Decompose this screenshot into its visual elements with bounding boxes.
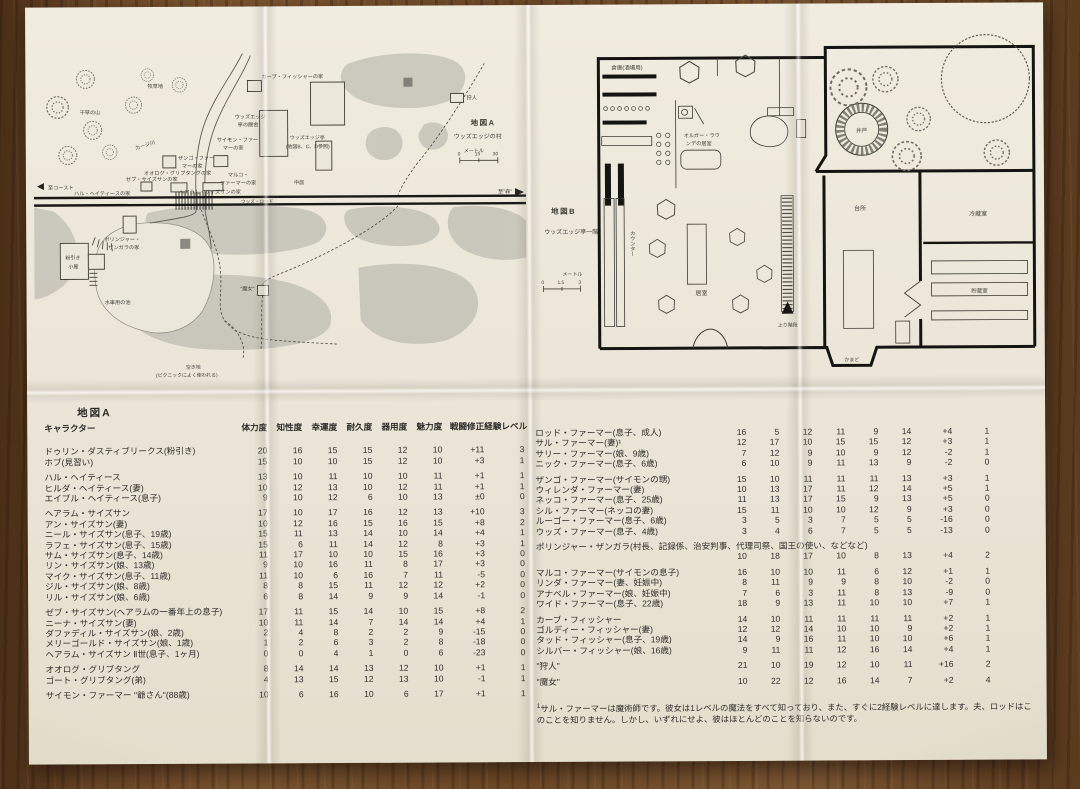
stat-value: 18 [747,551,780,562]
stat-value: 11 [813,634,846,645]
stat-value: 10 [268,570,303,581]
map-a-label-mill-2: 小屋 [68,263,78,270]
stat-value: 8 [408,538,443,549]
stat-value: 15 [304,674,339,685]
stat-value: 11 [268,617,303,628]
stat-value: 14 [780,623,813,634]
map-b-subtitle: ウッズエッジ亭一階 [544,228,598,236]
stat-value: 1 [952,446,989,457]
stat-value: +3 [911,436,952,447]
stat-value: 9 [779,447,812,458]
character-name: ヘアラム・サイズサン Ⅱ世(息子、1ヶ月) [45,648,233,659]
stat-value: 9 [714,645,747,656]
map-a-label-witch: "魔女" [240,284,254,292]
stat-value: 1 [485,527,525,538]
stat-value: 10 [746,473,779,484]
stat-value: +8 [443,605,485,616]
stat-value: 7 [373,570,408,581]
stat-value: 14 [303,591,338,602]
stat-value: 13 [747,494,780,505]
stat-value: 10 [373,528,408,539]
stat-value: 2 [268,638,303,649]
table-body-right: ロッド・ファーマー(息子、成人)1651211914+41サル・ファーマー(妻)… [535,426,1006,687]
stat-value: 11 [813,566,846,577]
stat-value: 17 [233,508,268,519]
map-a-label-stable-2: 亭の厩舎 [238,120,260,128]
stat-value: 12 [373,481,408,492]
map-b-label-olgar-1: オルガー・ラウ [684,131,720,139]
map-b-scale-1-5: 1.5 [557,280,564,286]
map-b-label-hearth: かまど [844,356,859,363]
stat-value: 11 [845,473,878,484]
stat-value: 10 [746,458,779,469]
stat-value: 21 [714,660,747,671]
stat-value: 0 [953,586,990,597]
stat-value: 13 [303,528,338,539]
trees [47,69,187,165]
character-name: シルバー・フィッシャー(娘、16歳) [536,645,714,656]
stat-value: +4 [912,644,953,655]
stat-value: 1 [952,472,989,483]
stat-value: +4 [911,426,952,437]
stat-value: 10 [714,551,747,562]
stat-value: 1 [953,597,990,608]
stat-value: 1 [953,612,990,623]
stat-value: 5 [879,525,912,536]
header-combat-adds: 戦闘修正 [442,421,484,432]
stat-value: 14 [847,675,880,686]
stat-value: 12 [813,660,846,671]
table-row: ウッズ・ファーマー(息子、4歳)346755-130 [536,524,1006,537]
stat-value: 1 [952,426,989,437]
stat-value: 4 [747,525,780,536]
table-row: エイブル・ヘイティース(息子)9101261013±00 [45,491,529,504]
stat-value: 10 [234,689,269,700]
stat-value: 13 [747,484,780,495]
stat-value: 10 [779,437,812,448]
stat-value: 10 [373,606,408,617]
stat-value: 10 [846,659,879,670]
stat-value: 13 [232,472,267,483]
stat-value: 0 [485,569,525,580]
stat-value: 10 [846,634,879,645]
stat-value: -18 [443,637,485,648]
stat-value: -16 [912,514,953,525]
stat-value: 0 [485,626,525,637]
character-name: ワイド・ファーマー(息子、22歳) [536,598,714,609]
map-a-label-fisher-house: カーブ・フィッシャーの家 [261,72,323,80]
character-name: エイブル・ヘイティース(息子) [45,493,233,504]
stat-value: 14 [338,606,373,617]
stat-value: 0 [953,503,990,514]
stat-value: 1 [484,470,524,481]
stat-value: +4 [912,550,953,561]
stat-value: 10 [268,492,303,503]
stat-value: 10 [407,445,442,456]
stat-value: +11 [442,445,484,456]
stat-value: -2 [911,457,952,468]
table-row: 10181710813+42 [536,550,1006,563]
stat-value: +2 [443,580,485,591]
stat-value: 11 [268,528,303,539]
stat-value: -5 [443,569,485,580]
table-section-title: 地図A [77,405,112,420]
stat-value: +5 [912,493,953,504]
stat-value: 11 [779,473,812,484]
stat-value: 7 [880,675,913,686]
stat-value: 10 [373,492,408,503]
stat-value: 14 [408,616,443,627]
character-name: ニック・ファーマー(息子、6歳) [535,458,713,469]
stat-value: -9 [912,587,953,598]
stat-value: 11 [812,458,845,469]
stat-value: 12 [746,448,779,459]
footnote: 1サル・ファーマーは魔術師です。彼女は1レベルの魔法をすべて知っており、また、す… [537,698,1039,725]
map-b-label-olgar-2: ンデの居室 [686,139,712,147]
map-a-label-stable-1: ウッズエッジ [235,112,266,120]
header-dexterity: 器用度 [372,422,407,433]
stat-value: 16 [780,634,813,645]
stat-value: 11 [408,481,443,492]
character-name: "魔女" [537,676,715,687]
stat-value: 1 [484,455,524,466]
map-b-scale-3: 3 [578,280,581,286]
map-b-label-kitchen: 台所 [854,204,866,212]
stat-value: 11 [338,580,373,591]
photo-of-document: 牧草地 干草の山 カージ川 カーブ・フィッシャーの家 ウッズエッジ 亭の厩舎 ウ… [0,0,1080,789]
stat-value: 3 [338,637,373,648]
character-name: ウッズ・ファーマー(息子、4歳) [536,526,714,537]
character-name: ゴート・グリブタング(弟) [46,674,234,685]
map-a-label-inn-1: ウッズエッジ亭 [290,134,325,141]
stat-value: 12 [779,427,812,438]
stat-value: +1 [912,566,953,577]
stat-value: 11 [747,577,780,588]
stat-value: 6 [846,566,879,577]
map-a-label-marco-house-2: ファーマーの家 [220,178,256,186]
map-a-label-mill-1: 粉引き [65,254,80,261]
stat-value: 12 [879,566,912,577]
stat-value: 17 [746,437,779,448]
stat-value: 17 [268,549,303,560]
stat-value: 14 [303,617,338,628]
stat-value: 12 [846,483,879,494]
stat-value: 8 [233,664,268,675]
stat-value: +3 [443,559,485,570]
header-luck: 幸運度 [302,422,337,433]
stat-value: 0 [953,514,990,525]
stat-value: +4 [443,616,485,627]
stat-value: 11 [780,613,813,624]
stat-value: 6 [303,570,338,581]
map-a-label-zango-house-2: マーの家 [182,162,203,170]
stat-value: 10 [846,597,879,608]
stat-value: 15 [233,529,268,540]
stat-value: 15 [302,445,337,456]
stat-value: 8 [373,559,408,570]
stat-value: 0 [485,548,525,559]
stat-value: 16 [408,549,443,560]
stat-value: 1 [953,643,990,654]
character-name: ホブ(見習い) [44,456,232,467]
header-character: キャラクター [44,423,232,434]
stat-value: 12 [713,437,746,448]
stat-value: 12 [268,518,303,529]
stat-value: 10 [747,613,780,624]
stat-value: 0 [485,636,525,647]
stat-value: 16 [267,446,302,457]
stat-value: 12 [714,624,747,635]
stat-value: 16 [713,427,746,438]
stat-value: 7 [714,588,747,599]
map-b-label-cold-room: 冷蔵室 [969,210,987,218]
map-b-label-stairs: 上り階段 [778,322,798,329]
map-b-label-well: 井戸 [856,126,868,134]
stat-value: 6 [268,539,303,550]
stat-value: 1 [485,481,525,492]
stat-value: 14 [408,590,443,601]
table-row: シルバー・フィッシャー(娘、16歳)91111121614+41 [536,643,1006,656]
stat-value: 0 [485,590,525,601]
stat-value: 11 [338,559,373,570]
stat-value: 11 [879,659,912,670]
stat-value: 11 [233,549,268,560]
stat-value: 5 [746,427,779,438]
stat-value: +2 [913,674,954,685]
stat-value: 14 [338,528,373,539]
table-row: リル・サイズサン(娘、6歳)68149914-10 [45,590,529,603]
table-row: ニック・ファーマー(息子、6歳)610911139-20 [535,457,1005,470]
kitchen-fittings [843,249,1027,343]
stat-value: ±0 [443,491,485,502]
stat-value: 15 [408,606,443,617]
stat-value: 6 [780,525,813,536]
stat-value: 15 [337,456,372,467]
map-a-label-bolinger-1: ポリンジャー・ [104,235,140,243]
map-a-label-zeb-house: ゼブ・サイズサンの家 [126,175,178,183]
stat-value: 11 [813,613,846,624]
stat-value: 5 [846,514,879,525]
stat-value: 10 [879,576,912,587]
stat-value: 0 [953,524,990,535]
map-a-title: 地図A [471,117,496,127]
stat-value: 12 [373,663,408,674]
map-a-label-ohlog-house: オオログ・グリブタングの家 [144,169,211,177]
stat-value: 9 [373,590,408,601]
stat-value: 9 [747,598,780,609]
stat-value: 9 [846,494,879,505]
stat-value: 8 [268,591,303,602]
stat-value: 12 [373,538,408,549]
stat-value: 9 [845,447,878,458]
stat-value: 1 [338,648,373,659]
stat-value: 2 [953,659,990,670]
stat-value: 4 [303,648,338,659]
stat-value: 2 [233,627,268,638]
stat-value: 8 [303,627,338,638]
map-b-title: 地図B [551,206,576,216]
table-row: サイモン・ファーマー "爺さん"(88歳)1061610617+11 [46,688,530,701]
stat-value: 6 [338,492,373,503]
stat-value: 17 [303,507,338,518]
stat-value: 10 [268,508,303,519]
stat-value: 13 [408,507,443,518]
stat-value: 7 [813,515,846,526]
stat-value: 11 [812,473,845,484]
stat-value: 17 [233,606,268,617]
stat-value: 10 [267,456,302,467]
stat-value: +1 [443,481,485,492]
table-row: "狩人"211019121011+162 [536,659,1006,672]
stat-value: 7 [813,525,846,536]
stat-value: 7 [713,448,746,459]
map-a-label-to-coast: 至コースト [48,184,74,191]
map-b-label-storage: 倉庫(酒場用) [611,63,642,71]
map-b-label-living: 居室 [696,289,708,297]
table-row: ゴート・グリブタング(弟)41315121310-11 [46,673,530,686]
stat-value: 11 [747,644,780,655]
stat-value: 10 [715,675,748,686]
stat-value: 8 [268,581,303,592]
stat-value: 2 [373,627,408,638]
stat-value: 10 [233,518,268,529]
stat-value: 13 [269,674,304,685]
stat-value: 14 [303,663,338,674]
character-table-right: ロッド・ファーマー(息子、成人)1651211914+41サル・ファーマー(妻)… [535,426,1006,692]
stat-value: 10 [409,673,444,684]
stat-value: 13 [878,473,911,484]
stat-value: 17 [780,551,813,562]
stat-value: 15 [337,445,372,456]
stat-value: 10 [337,471,372,482]
stat-value: 14 [408,528,443,539]
stat-value: 15 [408,517,443,528]
map-a-label-marco-house-1: マルコ・ [228,172,249,179]
character-table-left: キャラクター 体力度 知性度 幸運度 耐久度 器用度 魅力度 戦闘修正 経験レベ… [44,421,529,706]
stat-value: 10 [268,560,303,571]
stat-value: 15 [338,518,373,529]
stat-value: 0 [233,648,268,659]
map-b-label-pantry: 貯蔵室 [971,287,988,295]
storage-shelves [601,74,670,205]
stat-value: 10 [879,633,912,644]
stat-value: 15 [713,474,746,485]
stat-value: 13 [338,663,373,674]
stat-value: +4 [443,528,485,539]
stat-value: 11 [813,483,846,494]
stat-value: 14 [714,634,747,645]
stat-value: 14 [268,663,303,674]
stat-value: -1 [444,673,486,684]
stat-value: 12 [268,482,303,493]
stat-value: 12 [781,675,814,686]
stat-value: 11 [714,494,747,505]
inn-walls [598,46,1035,366]
olgar-room [675,55,755,188]
stat-value: 12 [303,492,338,503]
stat-value: 6 [233,591,268,602]
stat-value: 13 [408,492,443,503]
stat-value: 1 [953,483,990,494]
stat-value: 15 [845,437,878,448]
stat-value: 0 [485,579,525,590]
stat-value: 8 [846,551,879,562]
stat-value: 10 [812,447,845,458]
stat-value: 16 [303,518,338,529]
stat-value: 14 [879,644,912,655]
stat-value: 0 [952,457,989,468]
counter-shape [604,199,625,327]
stat-value: 15 [812,437,845,448]
stat-value: 10 [747,567,780,578]
map-a-label-inn-2: (地図B、C、D参照) [286,143,330,150]
map-b-scale-unit: メートル [562,272,582,278]
stat-value: 10 [338,481,373,492]
map-a-label-zango-house-1: ザンゴ・ファー [178,154,214,162]
stat-value: 4 [268,627,303,638]
stat-value: 11 [233,570,268,581]
stat-value: 9 [408,626,443,637]
stat-value: 9 [878,457,911,468]
stat-value: 11 [812,426,845,437]
stat-value: 1 [952,436,989,447]
stat-value: 10 [846,623,879,634]
stat-value: 11 [780,644,813,655]
header-intelligence: 知性度 [267,422,302,433]
map-a-label-pond: 水車用の池 [105,298,131,306]
stat-value: 2 [953,550,990,561]
stat-value: 1 [485,616,525,627]
map-a-subtitle: ウッズエッジの村 [454,132,502,140]
stat-value: 0 [268,648,303,659]
character-name: サイモン・ファーマー "爺さん"(88歳) [46,690,234,701]
stat-value: +3 [443,548,485,559]
stat-value: 9 [779,458,812,469]
stat-value: 10 [780,504,813,515]
stat-value: 7 [338,616,373,627]
table-row: ワイド・ファーマー(息子、22歳)18913111010+71 [536,597,1006,610]
stat-value: 10 [407,455,442,466]
stat-value: 2 [485,605,525,616]
stat-value: +7 [912,597,953,608]
stat-value: 11 [407,471,442,482]
paper-sheet: 牧草地 干草の山 カージ川 カーブ・フィッシャーの家 ウッズエッジ 亭の厩舎 ウ… [25,2,1047,764]
stat-value: 13 [879,551,912,562]
stat-value: 11 [268,606,303,617]
stat-value: 10 [879,597,912,608]
map-b-scale-0: 0 [541,280,544,286]
stat-value: 3 [714,515,747,526]
stat-value: 0 [485,647,525,658]
stat-value: 5 [747,515,780,526]
stat-value: 0 [953,576,990,587]
stat-value: 8 [233,581,268,592]
header-strength: 体力度 [232,422,267,433]
stat-value: 17 [409,688,444,699]
map-a-scale-30: 30 [493,151,499,157]
stat-value: 11 [813,597,846,608]
character-name: リル・サイズサン(娘、6歳) [45,591,233,602]
map-a-scale-0: 0 [458,151,461,157]
stat-value: 15 [303,580,338,591]
stat-value: 16 [338,570,373,581]
map-a-label-simon-house-2: マーの家 [223,144,244,152]
stat-value: 10 [408,663,443,674]
stat-value: 15 [232,456,267,467]
stat-value: 11 [813,587,846,598]
table-body-left: ドゥリン・ダスティブリークス(粉引き)201615151210+113ホブ(見習… [44,444,529,700]
map-a-scale-bar [460,157,498,163]
